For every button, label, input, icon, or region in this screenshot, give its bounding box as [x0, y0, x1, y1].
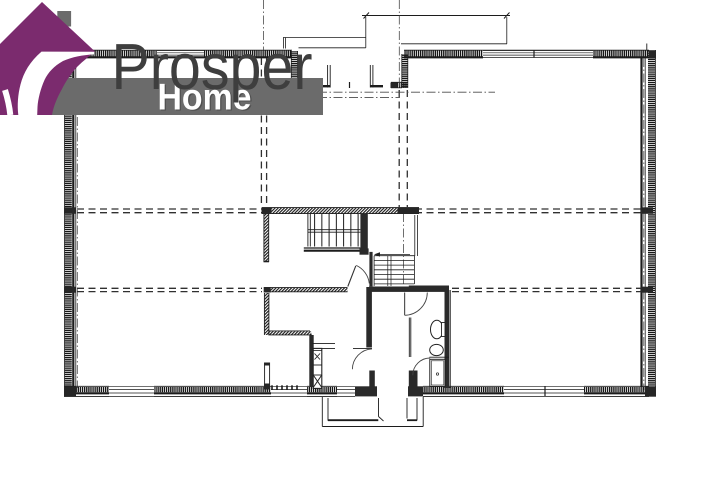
svg-text:Prosper: Prosper — [112, 30, 313, 103]
